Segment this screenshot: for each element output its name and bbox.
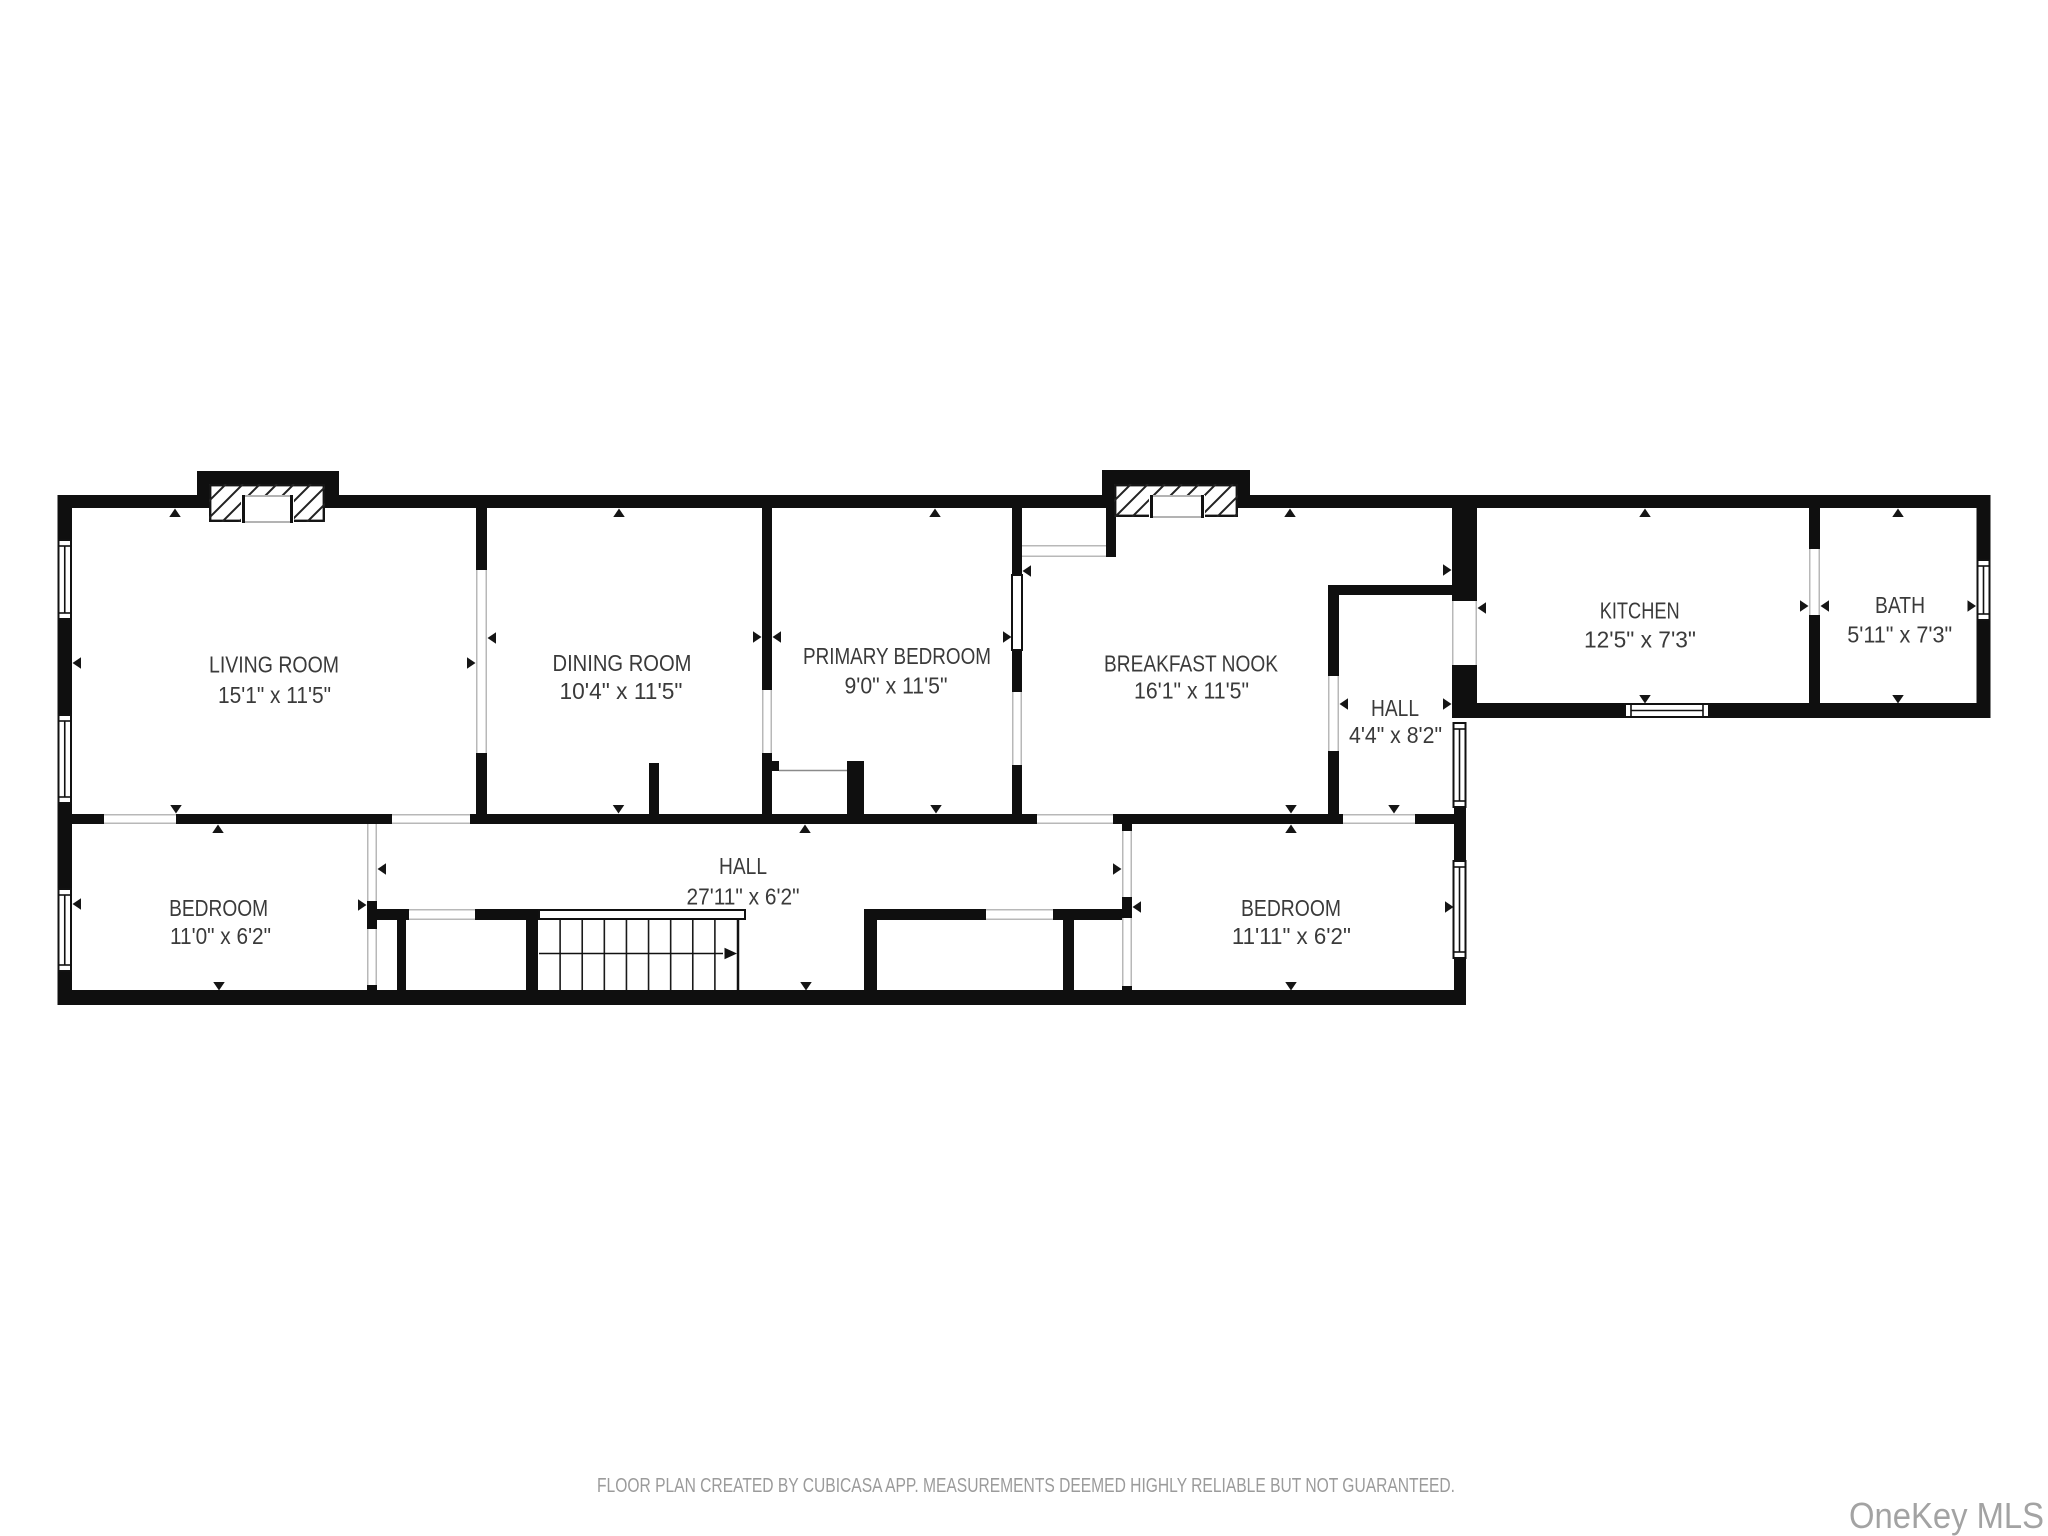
svg-text:11'0" x 6'2": 11'0" x 6'2" <box>170 923 271 949</box>
svg-text:12'5" x 7'3": 12'5" x 7'3" <box>1584 626 1696 652</box>
svg-text:LIVING ROOM: LIVING ROOM <box>209 652 339 678</box>
svg-text:9'0" x 11'5": 9'0" x 11'5" <box>845 673 948 699</box>
svg-text:5'11" x 7'3": 5'11" x 7'3" <box>1847 621 1952 647</box>
svg-text:HALL: HALL <box>719 853 767 879</box>
svg-text:BEDROOM: BEDROOM <box>169 895 268 921</box>
svg-text:15'1" x 11'5": 15'1" x 11'5" <box>218 682 331 708</box>
svg-text:PRIMARY BEDROOM: PRIMARY BEDROOM <box>803 643 991 669</box>
svg-text:4'4" x 8'2": 4'4" x 8'2" <box>1349 722 1442 748</box>
svg-text:BREAKFAST NOOK: BREAKFAST NOOK <box>1104 650 1279 676</box>
svg-text:HALL: HALL <box>1371 695 1419 721</box>
svg-text:11'11" x 6'2": 11'11" x 6'2" <box>1232 923 1351 949</box>
svg-text:FLOOR PLAN CREATED BY CUBICASA: FLOOR PLAN CREATED BY CUBICASA APP. MEAS… <box>597 1475 1455 1497</box>
svg-text:OneKey MLS: OneKey MLS <box>1849 1495 2044 1536</box>
svg-text:KITCHEN: KITCHEN <box>1600 598 1680 624</box>
svg-text:BEDROOM: BEDROOM <box>1241 895 1341 921</box>
svg-text:27'11" x 6'2": 27'11" x 6'2" <box>687 884 800 910</box>
svg-text:16'1" x 11'5": 16'1" x 11'5" <box>1134 677 1249 703</box>
svg-text:BATH: BATH <box>1875 592 1925 618</box>
svg-text:DINING ROOM: DINING ROOM <box>553 650 692 676</box>
svg-text:10'4" x 11'5": 10'4" x 11'5" <box>560 678 683 704</box>
